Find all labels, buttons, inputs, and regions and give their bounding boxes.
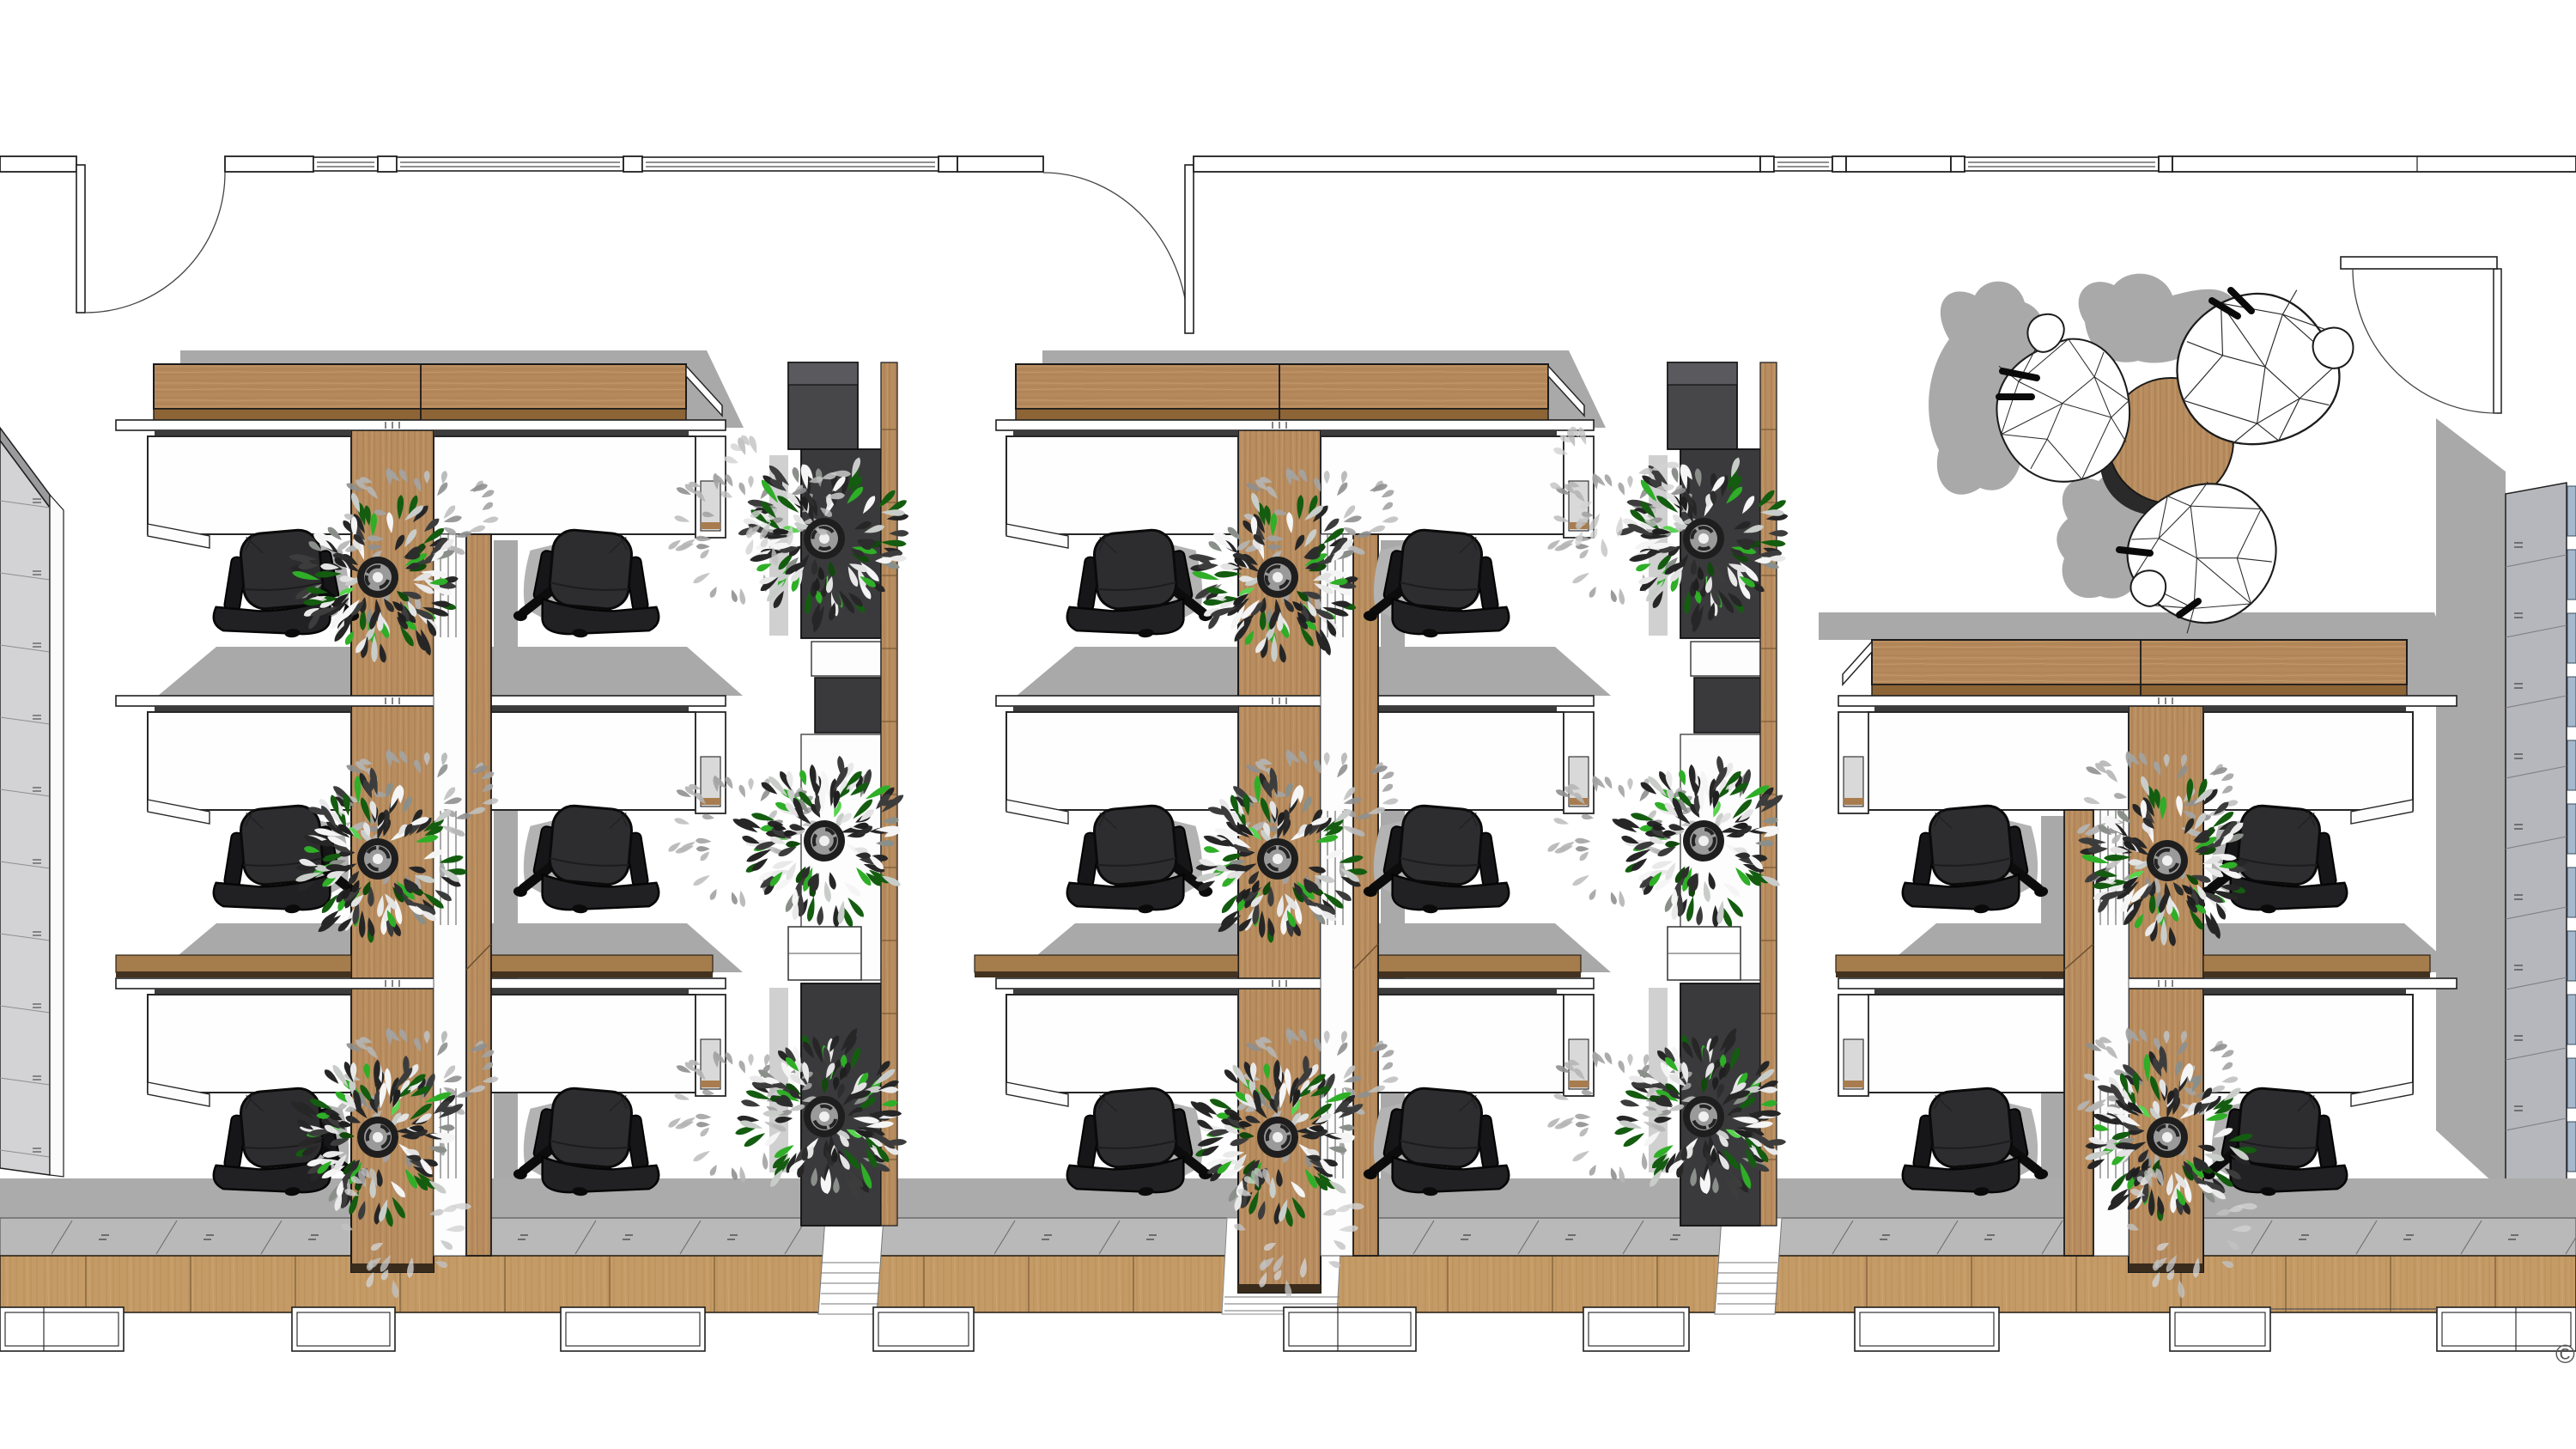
- svg-text:©: ©: [2555, 1339, 2575, 1369]
